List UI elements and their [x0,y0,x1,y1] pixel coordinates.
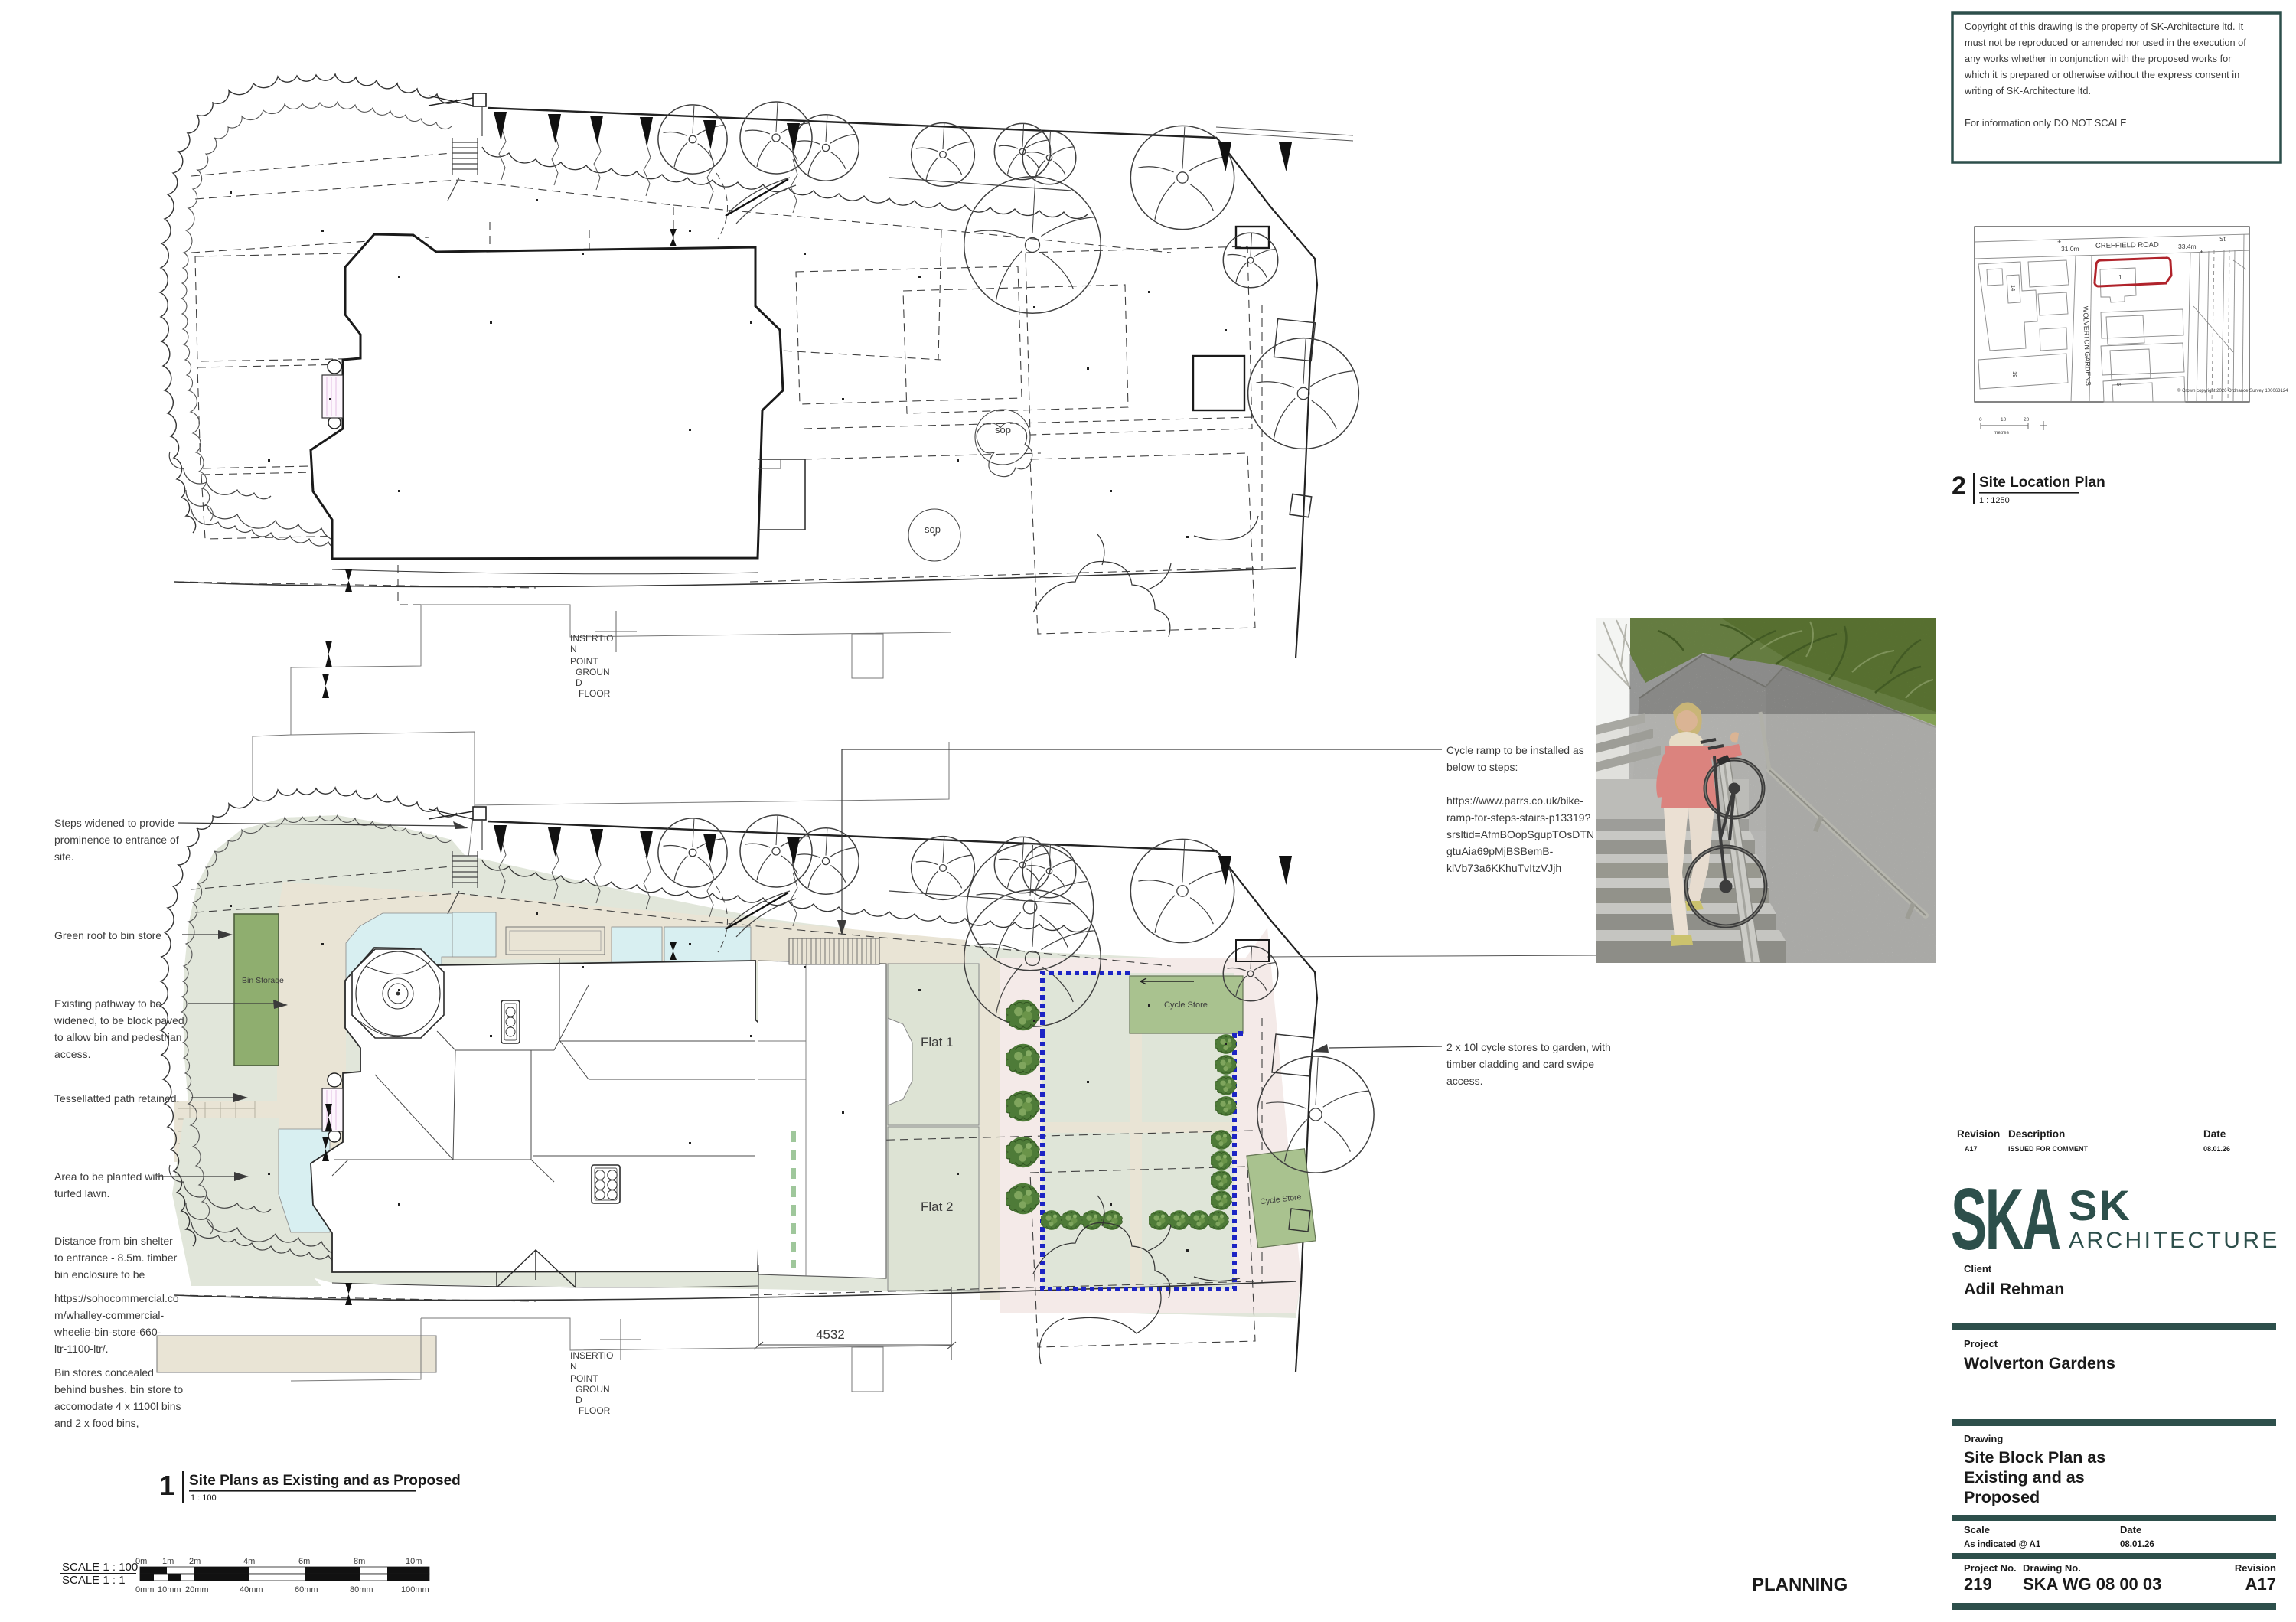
svg-text:m/whalley-commercial-: m/whalley-commercial- [54,1309,164,1321]
svg-text:Site Plans as Existing and as: Site Plans as Existing and as Proposed [189,1473,461,1489]
svg-text:klVb73a6KKhuTvItzVJjh: klVb73a6KKhuTvItzVJjh [1446,862,1561,874]
svg-text:SKA WG 08 00 03: SKA WG 08 00 03 [2023,1575,2161,1594]
svg-text:Site Block Plan as: Site Block Plan as [1964,1448,2105,1467]
svg-text:1 : 1250: 1 : 1250 [1979,496,2010,505]
svg-text:https://sohocommercial.co: https://sohocommercial.co [54,1292,179,1304]
svg-text:srsltid=AfmBOopSgupTOsDTN: srsltid=AfmBOopSgupTOsDTN [1446,828,1594,840]
svg-text:Existing and as: Existing and as [1964,1468,2085,1487]
svg-text:wheelie-bin-store-660-: wheelie-bin-store-660- [54,1326,161,1338]
svg-text:ramp-for-steps-stairs-p13319?: ramp-for-steps-stairs-p13319? [1446,811,1591,824]
svg-text:to allow bin and pedestrian: to allow bin and pedestrian [54,1031,182,1043]
svg-text:Revision: Revision [2235,1562,2276,1574]
svg-text:1 : 100: 1 : 100 [191,1493,217,1503]
svg-text:GROUN: GROUN [576,1384,610,1395]
svg-text:and 2 x food bins,: and 2 x food bins, [54,1417,139,1429]
svg-text:GROUN: GROUN [576,667,610,677]
svg-text:ISSUED FOR COMMENT: ISSUED FOR COMMENT [2008,1145,2089,1153]
svg-text:219: 219 [1964,1575,1992,1594]
svg-text:CREFFIELD ROAD: CREFFIELD ROAD [2095,241,2159,250]
svg-text:Scale: Scale [1964,1524,1990,1536]
svg-text:ARCHITECTURE: ARCHITECTURE [2069,1228,2280,1253]
svg-text:SCALE 1 : 1: SCALE 1 : 1 [62,1574,126,1587]
svg-text:A17: A17 [2245,1575,2276,1594]
svg-text:Date: Date [2203,1128,2226,1140]
svg-text:which it is prepared or otherw: which it is prepared or otherwise withou… [1964,69,2239,80]
svg-text:Flat 2: Flat 2 [921,1199,954,1214]
svg-text:Area to be planted with: Area to be planted with [54,1170,164,1183]
svg-text:Green roof to bin store: Green roof to bin store [54,929,161,942]
svg-text:10mm: 10mm [158,1585,181,1594]
svg-text:+: + [2057,238,2061,246]
svg-text:ltr-1100-ltr/.: ltr-1100-ltr/. [54,1343,109,1355]
svg-text:6m: 6m [298,1557,310,1566]
svg-text:Project: Project [1964,1338,1998,1349]
svg-text:behind bushes. bin store to: behind bushes. bin store to [54,1383,183,1395]
svg-text:Existing pathway to be: Existing pathway to be [54,997,161,1010]
svg-text:Site Location Plan: Site Location Plan [1979,475,2105,491]
svg-text:Adil Rehman: Adil Rehman [1964,1280,2064,1298]
svg-text:1: 1 [159,1470,174,1501]
svg-text:timber cladding and card swipe: timber cladding and card swipe [1446,1058,1594,1070]
svg-text:any works whether in conjuncti: any works whether in conjunction with th… [1965,53,2232,64]
svg-text:4m: 4m [243,1557,255,1566]
svg-text:to entrance - 8.5m. timber: to entrance - 8.5m. timber [54,1252,178,1264]
svg-text:20mm: 20mm [185,1585,209,1594]
svg-text:Wolverton Gardens: Wolverton Gardens [1964,1354,2115,1372]
svg-text:accomodate 4 x 1100l bins: accomodate 4 x 1100l bins [54,1400,181,1412]
svg-text:N: N [570,1361,577,1372]
svg-text:Project No.: Project No. [1964,1562,2017,1574]
svg-text:PLANNING: PLANNING [1752,1575,1848,1595]
svg-text:10: 10 [2001,417,2007,423]
svg-text:D: D [576,677,582,688]
svg-text:0: 0 [1979,417,1982,423]
svg-text:sop: sop [995,424,1011,436]
svg-text:80mm: 80mm [350,1585,373,1594]
svg-text:31.0m: 31.0m [2061,245,2079,253]
svg-text:2: 2 [1952,472,1966,501]
svg-text:access.: access. [54,1048,90,1060]
svg-text:prominence to entrance of: prominence to entrance of [54,834,179,846]
svg-text:sop: sop [925,524,941,535]
svg-text:turfed lawn.: turfed lawn. [54,1187,109,1199]
svg-text:INSERTIO: INSERTIO [570,1350,613,1361]
svg-text:Steps widened to provide: Steps widened to provide [54,817,174,829]
svg-text:40mm: 40mm [240,1585,263,1594]
svg-text:Description: Description [2008,1128,2065,1140]
svg-text:writing of SK-Architecture ltd: writing of SK-Architecture ltd. [1964,85,2091,96]
svg-text:SKA: SKA [1951,1171,2060,1268]
svg-text:INSERTIO: INSERTIO [570,633,613,644]
svg-text:19: 19 [2011,371,2018,377]
svg-text:Date: Date [2120,1524,2141,1536]
svg-text:SK: SK [2069,1181,2131,1229]
svg-text:must not be reproduced or amen: must not be reproduced or amended nor us… [1965,37,2246,48]
svg-text:2m: 2m [189,1557,201,1566]
svg-text:Tessellatted path retained.: Tessellatted path retained. [54,1092,179,1105]
svg-text:08.01.26: 08.01.26 [2120,1540,2154,1549]
svg-text:below to steps:: below to steps: [1446,761,1518,773]
svg-text:14: 14 [2010,285,2017,291]
svg-text:Flat 1: Flat 1 [921,1035,954,1049]
svg-text:FLOOR: FLOOR [579,1405,611,1416]
svg-text:site.: site. [54,850,74,863]
svg-text:0m: 0m [135,1557,147,1566]
svg-text:8m: 8m [354,1557,365,1566]
svg-text:10m: 10m [406,1557,422,1566]
svg-text:Distance from bin shelter: Distance from bin shelter [54,1235,173,1247]
svg-text:+: + [2200,248,2203,256]
svg-text:POINT: POINT [570,656,598,667]
svg-text:60mm: 60mm [295,1585,318,1594]
svg-text:100mm: 100mm [401,1585,429,1594]
svg-text:D: D [576,1395,582,1405]
svg-text:N: N [570,644,577,654]
svg-text:Bin stores concealed: Bin stores concealed [54,1366,154,1379]
svg-text:Client: Client [1964,1263,1992,1274]
svg-text:Drawing: Drawing [1964,1433,2003,1444]
svg-text:Drawing No.: Drawing No. [2023,1562,2081,1574]
svg-text:1m: 1m [162,1557,174,1566]
svg-text:Proposed: Proposed [1964,1488,2040,1506]
svg-text:bin enclosure to be: bin enclosure to be [54,1268,145,1281]
svg-text:2 x 10l cycle stores to garden: 2 x 10l cycle stores to garden, with [1446,1041,1611,1053]
svg-text:A17: A17 [1965,1145,1978,1153]
svg-text:Copyright of this drawing is t: Copyright of this drawing is the propert… [1965,21,2244,32]
svg-text:20: 20 [2024,417,2030,423]
svg-text:Revision: Revision [1957,1128,2000,1140]
svg-text:metres: metres [1994,430,2010,436]
svg-text:Cycle Store: Cycle Store [1164,1000,1208,1010]
svg-text:Bin Storage: Bin Storage [242,976,284,985]
svg-text:For information only DO NOT SC: For information only DO NOT SCALE [1965,117,2127,129]
svg-text:As indicated @ A1: As indicated @ A1 [1964,1540,2041,1549]
svg-text:gtuAia69pMjBSBemB-: gtuAia69pMjBSBemB- [1446,845,1554,857]
svg-text:widened, to be block paved: widened, to be block paved [54,1014,184,1026]
svg-text:SCALE 1 : 100: SCALE 1 : 100 [62,1561,138,1574]
svg-text:© Crown copyright 2026 Ordnanc: © Crown copyright 2026 Ordnance Survey 1… [2177,388,2288,393]
svg-text:POINT: POINT [570,1373,598,1384]
svg-text:access.: access. [1446,1075,1482,1087]
svg-text:33.4m: 33.4m [2178,243,2197,250]
svg-text:6: 6 [2115,383,2122,386]
svg-text:0mm: 0mm [135,1585,154,1594]
svg-text:FLOOR: FLOOR [579,688,611,699]
svg-text:https://www.parrs.co.uk/bike-: https://www.parrs.co.uk/bike- [1446,795,1583,807]
svg-text:St: St [2219,236,2226,243]
svg-text:Cycle ramp to be installed as: Cycle ramp to be installed as [1446,744,1584,756]
svg-text:08.01.26: 08.01.26 [2203,1145,2230,1153]
svg-text:4532: 4532 [816,1327,845,1342]
svg-text:1: 1 [2118,274,2122,281]
